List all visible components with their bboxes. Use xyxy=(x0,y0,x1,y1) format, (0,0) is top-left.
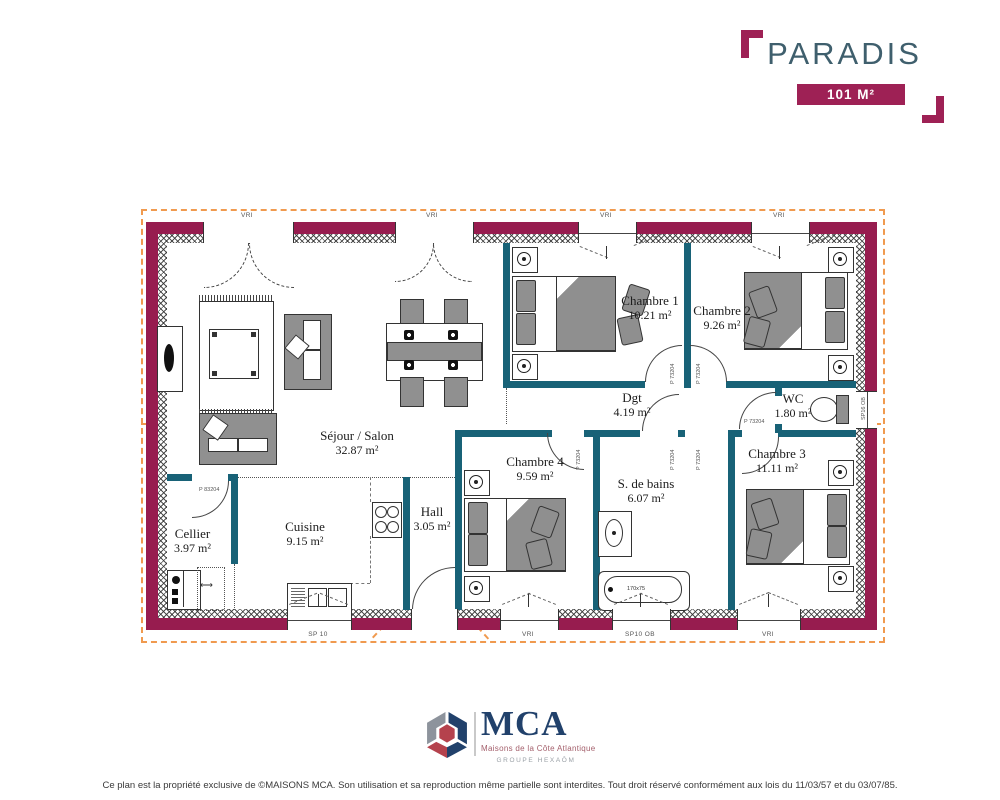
dining-chair xyxy=(400,377,424,407)
room-name: Cellier xyxy=(150,527,235,541)
partition-wall xyxy=(584,430,593,437)
nightstand xyxy=(512,247,538,273)
copyright-text: Ce plan est la propriété exclusive de ©M… xyxy=(0,780,1000,791)
bathtub: 170x75 xyxy=(598,571,690,611)
place-setting xyxy=(448,330,458,340)
tv-screen xyxy=(164,344,174,372)
partition-wall xyxy=(678,430,685,437)
window-label: VRI xyxy=(412,212,452,220)
corner-bracket-icon xyxy=(741,30,749,58)
room-name: Cuisine xyxy=(255,520,355,534)
door-label: P 73204 xyxy=(696,350,702,384)
door-label: P 83204 xyxy=(199,487,219,493)
window xyxy=(578,222,637,243)
partition-wall xyxy=(403,477,410,610)
french-door-opening xyxy=(395,222,474,243)
open-boundary xyxy=(234,564,235,610)
nightstand xyxy=(828,460,854,486)
door-label: P 73204 xyxy=(670,436,676,470)
shutter-tick xyxy=(606,246,607,259)
room-area: 1.80 m² xyxy=(762,406,824,420)
room-name: Chambre 2 xyxy=(670,304,774,318)
partition-wall xyxy=(728,430,742,437)
window-label: VRI xyxy=(748,631,788,639)
room-area: 9.26 m² xyxy=(670,318,774,332)
room-name: Chambre 3 xyxy=(727,447,827,461)
nightstand xyxy=(828,247,854,273)
room-area: 3.97 m² xyxy=(150,541,235,555)
sofa xyxy=(199,413,277,465)
room-area: 6.07 m² xyxy=(594,491,698,505)
partition-wall xyxy=(503,381,645,388)
nightstand xyxy=(828,355,854,381)
room-label-chambre4: Chambre 4 9.59 m² xyxy=(485,455,585,483)
dining-chair xyxy=(444,377,468,407)
room-area: 32.87 m² xyxy=(287,443,427,457)
shutter-tick xyxy=(318,594,319,607)
window xyxy=(500,609,559,630)
partition-wall xyxy=(726,381,856,388)
room-name: Dgt xyxy=(592,391,672,405)
washbasin xyxy=(598,511,632,557)
french-door-opening xyxy=(203,222,294,243)
floor-plan-page: PARADIS 101 M² xyxy=(0,0,1000,800)
nightstand xyxy=(828,566,854,592)
corner-bracket-icon xyxy=(922,115,944,123)
window-label: VRI xyxy=(508,631,548,639)
door-label: P 73204 xyxy=(670,350,676,384)
room-area: 11.11 m² xyxy=(727,461,827,475)
room-area: 4.19 m² xyxy=(592,405,672,419)
area-badge: 101 M² xyxy=(797,84,905,105)
kitchen-sink-counter xyxy=(287,583,352,611)
room-area: 3.05 m² xyxy=(397,519,467,533)
partition-wall xyxy=(167,474,192,481)
entrance-door-opening xyxy=(411,609,458,630)
logo-name: Maisons de la Côte Atlantique xyxy=(481,744,611,753)
washing-machine xyxy=(167,570,201,610)
shutter-tick xyxy=(640,594,641,607)
room-label-wc: WC 1.80 m² xyxy=(762,392,824,420)
open-boundary xyxy=(506,388,507,424)
partition-wall xyxy=(503,243,510,388)
room-area: 9.15 m² xyxy=(255,534,355,548)
place-setting xyxy=(404,330,414,340)
partition-wall xyxy=(455,430,552,437)
room-name: Chambre 4 xyxy=(485,455,585,469)
room-label-cellier: Cellier 3.97 m² xyxy=(150,527,235,555)
dining-table-top xyxy=(387,342,482,361)
partition-wall xyxy=(778,430,856,437)
window-label: SP 10 xyxy=(296,631,340,639)
kitchen-counter-outline xyxy=(350,583,370,584)
room-label-dgt: Dgt 4.19 m² xyxy=(592,391,672,419)
place-setting xyxy=(448,360,458,370)
window xyxy=(737,609,801,630)
room-name: Séjour / Salon xyxy=(287,429,427,443)
room-name: Hall xyxy=(397,505,467,519)
room-name: WC xyxy=(762,392,824,406)
partition-wall xyxy=(593,430,640,437)
window-label: SP10 OB xyxy=(615,631,665,639)
bathtub-size-label: 170x75 xyxy=(627,586,645,592)
window xyxy=(751,222,810,243)
kitchen-counter-outline xyxy=(370,536,371,583)
room-label-sdb: S. de bains 6.07 m² xyxy=(594,477,698,505)
window-label: VRI xyxy=(759,212,799,220)
sofa xyxy=(284,314,332,390)
room-label-chambre2: Chambre 2 9.26 m² xyxy=(670,304,774,332)
room-name: S. de bains xyxy=(594,477,698,491)
shutter-tick xyxy=(528,594,529,607)
toilet-tank xyxy=(836,395,849,424)
open-boundary xyxy=(238,477,403,478)
open-boundary xyxy=(410,477,455,478)
room-label-cuisine: Cuisine 9.15 m² xyxy=(255,520,355,548)
shutter-tick xyxy=(768,594,769,607)
shutter-tick xyxy=(779,246,780,259)
window xyxy=(612,609,671,630)
room-area: 9.59 m² xyxy=(485,469,585,483)
window-label: VRI xyxy=(586,212,626,220)
logo-divider xyxy=(474,712,476,756)
nightstand xyxy=(464,576,490,602)
nightstand xyxy=(512,354,538,380)
door-label: P 73204 xyxy=(696,436,702,470)
window-label: VRI xyxy=(227,212,267,220)
place-setting xyxy=(404,360,414,370)
kitchen-counter-outline xyxy=(370,477,371,502)
room-label-sejour: Séjour / Salon 32.87 m² xyxy=(287,429,427,457)
page-title: PARADIS xyxy=(762,36,927,72)
logo-acronym: MCA xyxy=(481,704,568,744)
mca-cube-logo-icon xyxy=(424,710,470,760)
coffee-table xyxy=(209,329,259,379)
room-label-chambre3: Chambre 3 11.11 m² xyxy=(727,447,827,475)
dimension-arrow: ⟷ xyxy=(200,580,213,591)
window xyxy=(287,609,352,630)
logo-group: GROUPE HEXAÔM xyxy=(486,757,586,764)
room-label-hall: Hall 3.05 m² xyxy=(397,505,467,533)
window-label: SP16 OB xyxy=(860,390,868,428)
